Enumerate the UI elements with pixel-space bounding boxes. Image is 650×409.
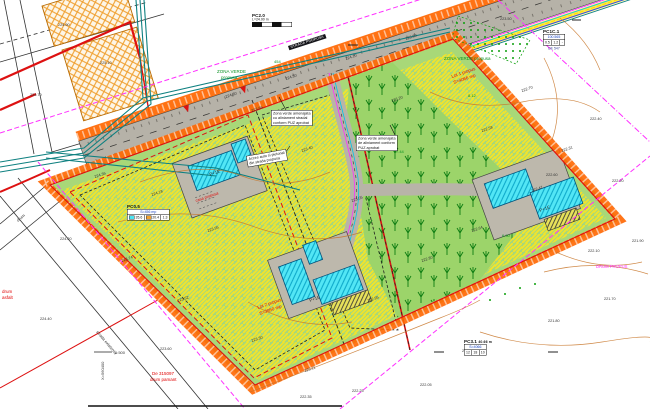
table-cell: 0.5 [543, 40, 551, 46]
map-label: 222.05 [420, 383, 432, 387]
map-label: 224.90 [58, 23, 70, 27]
table-cell: 10 [479, 350, 486, 356]
map-label: 221.90 [632, 239, 644, 243]
table-cell: 1.3 [161, 215, 169, 221]
map-label: 221.80 [548, 319, 560, 323]
map-label: 223.50 [500, 17, 512, 21]
map-label: 6.90 [502, 233, 511, 238]
table-cell: - [560, 40, 565, 46]
map-label: 224.40 [40, 317, 52, 321]
table-note: DE 547 [543, 47, 565, 51]
map-label: 454 [274, 59, 281, 64]
map-label: 222.70 [521, 85, 533, 93]
table-cell: 18 [472, 350, 479, 356]
map-label: 224.20 [60, 237, 72, 241]
annotation-line: conform PUZ aprobat [273, 120, 311, 125]
map-label: 8.12 [468, 93, 477, 98]
map-label: 222.35 [300, 395, 312, 399]
table-cell: 35.6 [127, 215, 144, 221]
site-plan-container: Lot 1 propusS=4066 mpLot 2 propusS=3950 … [0, 0, 650, 409]
map-label: 1:500 [115, 350, 126, 355]
map-label: 222.10 [588, 249, 600, 253]
map-label: X=560400 [100, 361, 105, 380]
map-label: propusa [221, 75, 238, 80]
coord-table: S=456 mp 35.6 20.4 1.3 [127, 209, 169, 221]
table-subtitle: L=24.00 m [252, 18, 292, 22]
map-label: 223.60 [160, 347, 172, 351]
coord-table-pc3: PC3.1 40.66 m S=4066 12 18 10 [464, 339, 492, 356]
map-label: drum [2, 289, 13, 294]
map-label: ZONA VERDE propusa [444, 56, 491, 61]
cyan-swatch-icon [129, 216, 135, 220]
table-cell: 20.4 [144, 215, 161, 221]
coord-table-pc05: PC0.5 S=456 mp 35.6 20.4 1.3 [127, 204, 169, 221]
scale-table-pc2: PC2.0 L=24.00 m [252, 13, 292, 27]
map-label: 221.70 [604, 297, 616, 301]
orange-swatch-icon [146, 216, 152, 220]
map-label: 224.70 [30, 93, 42, 97]
annotation-line: PUZ aprobat [358, 145, 396, 150]
coord-table: S=4066 12 18 10 [464, 344, 487, 356]
coord-table: 100.565 0.5 1.2 - [543, 34, 565, 46]
map-label: 222.31 [561, 145, 573, 153]
map-label: De 315097 [152, 371, 175, 376]
annotation-box-green-strip-2: Zona verde amenajata de aliniament confo… [356, 135, 398, 151]
map-label: 225.10 [100, 61, 112, 65]
existing-building-2 [62, 27, 158, 121]
map-label: 222.25 [352, 389, 364, 393]
scale-bar [252, 22, 292, 27]
map-label: DRUM PROPUS [596, 264, 628, 269]
map-label: ZONA VERDE [217, 69, 246, 74]
map-label: drum pamant [150, 377, 177, 382]
map-label: asfalt [2, 295, 14, 300]
annotation-box-green-strip: Zona verde amenajata cu aliniament strad… [271, 110, 313, 126]
table-cell: 1.2 [552, 40, 560, 46]
map-label: 222.20 [612, 179, 624, 183]
table-title: PC3.1 40.66 m [464, 339, 492, 344]
coord-table-pc1c: PC1C.1 100.565 0.5 1.2 - DE 547 [543, 29, 565, 51]
table-cell: 12 [464, 350, 471, 356]
site-plan-drawing: Lot 1 propusS=4066 mpLot 2 propusS=3950 … [0, 0, 650, 409]
map-label: 222.40 [590, 117, 602, 121]
map-label: 222.60 [546, 173, 558, 177]
